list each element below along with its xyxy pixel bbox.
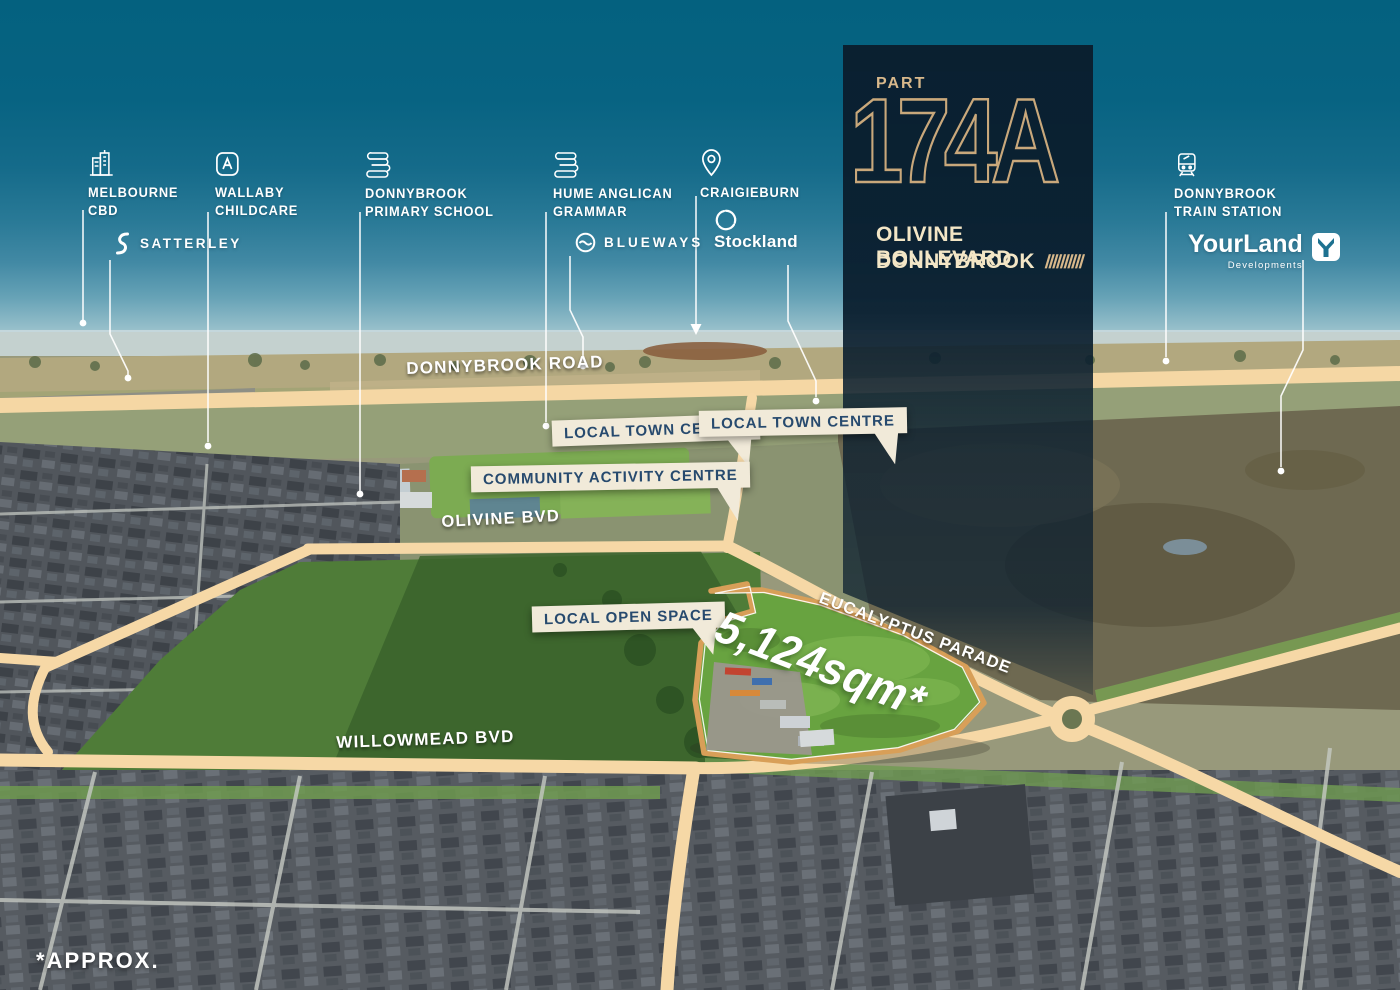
landmark-donnybrook-train-station: DONNYBROOK TRAIN STATION: [1174, 151, 1282, 221]
stockland-logo: Stockland: [714, 208, 794, 252]
map-pin-icon: [700, 148, 723, 177]
callout-community-activity-centre: COMMUNITY ACTIVITY CENTRE: [471, 462, 750, 493]
landmark-melbourne-cbd: MELBOURNE CBD: [88, 150, 178, 220]
stockland-swirl-icon: [714, 208, 738, 232]
childcare-letter-a-icon: [215, 151, 240, 177]
school-books-icon: [553, 152, 580, 178]
yourland-logo: YourLand Developments: [1188, 230, 1341, 271]
blueways-wave-icon: [575, 232, 596, 253]
site-map-poster: PART 174A OLIVINE BOULEVARD DONNYBROOK//…: [0, 0, 1400, 990]
train-icon: [1174, 151, 1200, 178]
landmark-hume-anglican-grammar: HUME ANGLICAN GRAMMAR: [553, 152, 673, 221]
city-buildings-icon: [88, 150, 115, 177]
landmark-wallaby-childcare: WALLABY CHILDCARE: [215, 151, 298, 220]
blueways-logo: BLUEWAYS: [575, 232, 703, 253]
satterley-logo: SATTERLEY: [113, 232, 242, 255]
school-books-icon: [365, 152, 392, 178]
yourland-y-shield-icon: [1311, 232, 1341, 262]
approx-footnote: *APPROX.: [36, 948, 160, 974]
landmark-donnybrook-primary-school: DONNYBROOK PRIMARY SCHOOL: [365, 152, 494, 221]
landmark-craigieburn: CRAIGIEBURN: [700, 148, 800, 202]
callout-local-town-centre-2: LOCAL TOWN CENTRE: [699, 407, 907, 437]
satterley-s-icon: [113, 232, 132, 255]
callout-local-open-space: LOCAL OPEN SPACE: [532, 601, 725, 632]
